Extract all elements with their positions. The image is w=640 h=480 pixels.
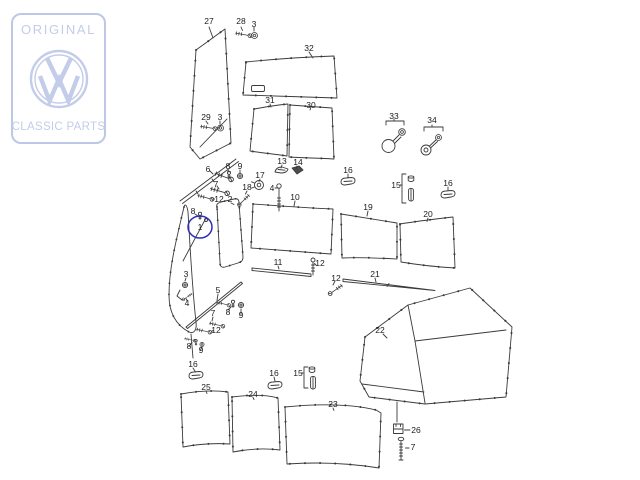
part-15-fastener-set [402,174,406,203]
part-label-1[interactable]: 1 [198,222,203,232]
part-33-fastener-set [382,119,404,153]
part-label-6[interactable]: 6 [206,164,211,174]
part-15-fastener-set [304,367,308,388]
part-label-4[interactable]: 4 [270,183,275,193]
part-label-16[interactable]: 16 [443,178,453,188]
part-3-grommet [182,282,187,287]
part-16-clip [341,178,355,186]
part-label-15[interactable]: 15 [391,180,401,190]
parts-catalog-page: ORIGINAL CLASSIC PARTS [0,0,640,480]
part-label-12[interactable]: 12 [214,194,224,204]
part-11-rod [252,268,311,277]
part-22-wheelhouse-cover [360,288,512,404]
part-16-clip [189,372,203,380]
part-label-33[interactable]: 33 [389,111,399,121]
part-label-16[interactable]: 16 [188,359,198,369]
part-21-rod [343,279,435,291]
part-20-panel [400,217,455,268]
part-16-clip [441,191,455,199]
part-label-8[interactable]: 8 [191,206,196,216]
part-25-panel [181,391,230,447]
part-9-grommet [238,302,243,307]
part-label-25[interactable]: 25 [201,382,211,392]
part-17-grommet [252,181,264,190]
part-30-panel [289,105,334,159]
part-34-washer [436,135,442,141]
part-label-31[interactable]: 31 [265,95,275,105]
part-1-leader-line [183,218,206,261]
part-label-15[interactable]: 15 [293,368,303,378]
part-28-screw [235,31,252,38]
part-label-9[interactable]: 9 [239,310,244,320]
part-12-screw [327,284,343,297]
part-label-24[interactable]: 24 [248,389,258,399]
part-label-18[interactable]: 18 [242,182,252,192]
part-label-20[interactable]: 20 [423,209,433,219]
part-9-grommet [237,173,242,178]
part-23-panel [285,405,381,468]
part-label-8[interactable]: 8 [226,307,231,317]
part-29-screw [200,124,217,130]
part-label-16[interactable]: 16 [343,165,353,175]
part-24-panel [232,395,280,452]
part-33-washer [399,129,406,136]
part-7-screw [398,437,404,460]
part-15-stud [409,188,414,201]
part-19-panel [341,214,397,259]
part-15-nut [309,367,315,373]
part-label-2[interactable]: 2 [228,194,233,204]
part-label-11[interactable]: 11 [274,257,283,267]
part-label-13[interactable]: 13 [277,156,287,166]
part-label-7[interactable]: 7 [214,179,219,189]
part-label-9[interactable]: 9 [199,345,204,355]
part-1-side-panel [169,205,196,358]
part-label-4[interactable]: 4 [185,298,190,308]
part-label-9[interactable]: 9 [238,161,243,171]
part-label-16[interactable]: 16 [269,368,279,378]
part-12-screw [196,328,212,335]
part-27-panel [190,29,231,159]
part-12-screw [197,194,214,202]
part-label-12[interactable]: 12 [331,273,341,283]
part-26-nut [394,402,404,434]
part-label-23[interactable]: 23 [328,399,338,409]
part-label-19[interactable]: 19 [363,202,373,212]
part-31-panel [250,104,288,156]
callout-leader-lines [185,27,448,448]
part-15-stud [311,376,316,389]
part-label-3[interactable]: 3 [252,19,257,29]
part-label-7[interactable]: 7 [211,308,216,318]
part-label-14[interactable]: 14 [293,157,303,167]
part-label-28[interactable]: 28 [236,16,246,26]
part-2-panel [217,199,243,268]
part-label-8[interactable]: 8 [226,161,231,171]
part-label-3[interactable]: 3 [218,112,223,122]
part-label-26[interactable]: 26 [411,425,421,435]
part-10-panel [251,204,333,254]
part-bracket [177,290,182,300]
part-label-34[interactable]: 34 [427,115,437,125]
part-32-panel [243,56,337,98]
part-label-30[interactable]: 30 [306,100,316,110]
part-label-12[interactable]: 12 [211,325,221,335]
parts-diagram: 1 2 3 3 3 4 4 5 6 7 7 7 8 8 8 8 9 9 9 10 [0,0,640,480]
part-label-21[interactable]: 21 [370,269,380,279]
part-label-5[interactable]: 5 [216,285,221,295]
part-14-clip [292,166,303,174]
part-labels: 1 2 3 3 3 4 4 5 6 7 7 7 8 8 8 8 9 9 9 10 [184,16,453,452]
part-15-nut [408,176,414,182]
part-label-8[interactable]: 8 [187,341,192,351]
part-label-17[interactable]: 17 [255,170,265,180]
part-label-27[interactable]: 27 [204,16,214,26]
part-label-12[interactable]: 12 [315,258,325,268]
part-label-22[interactable]: 22 [375,325,385,335]
part-label-32[interactable]: 32 [304,43,314,53]
part-label-29[interactable]: 29 [201,112,211,122]
part-8-stud [231,300,234,307]
part-3-washer [252,33,258,39]
part-16-clip [268,382,282,390]
part-label-3[interactable]: 3 [184,269,189,279]
part-label-10[interactable]: 10 [290,192,300,202]
part-label-7[interactable]: 7 [411,442,416,452]
